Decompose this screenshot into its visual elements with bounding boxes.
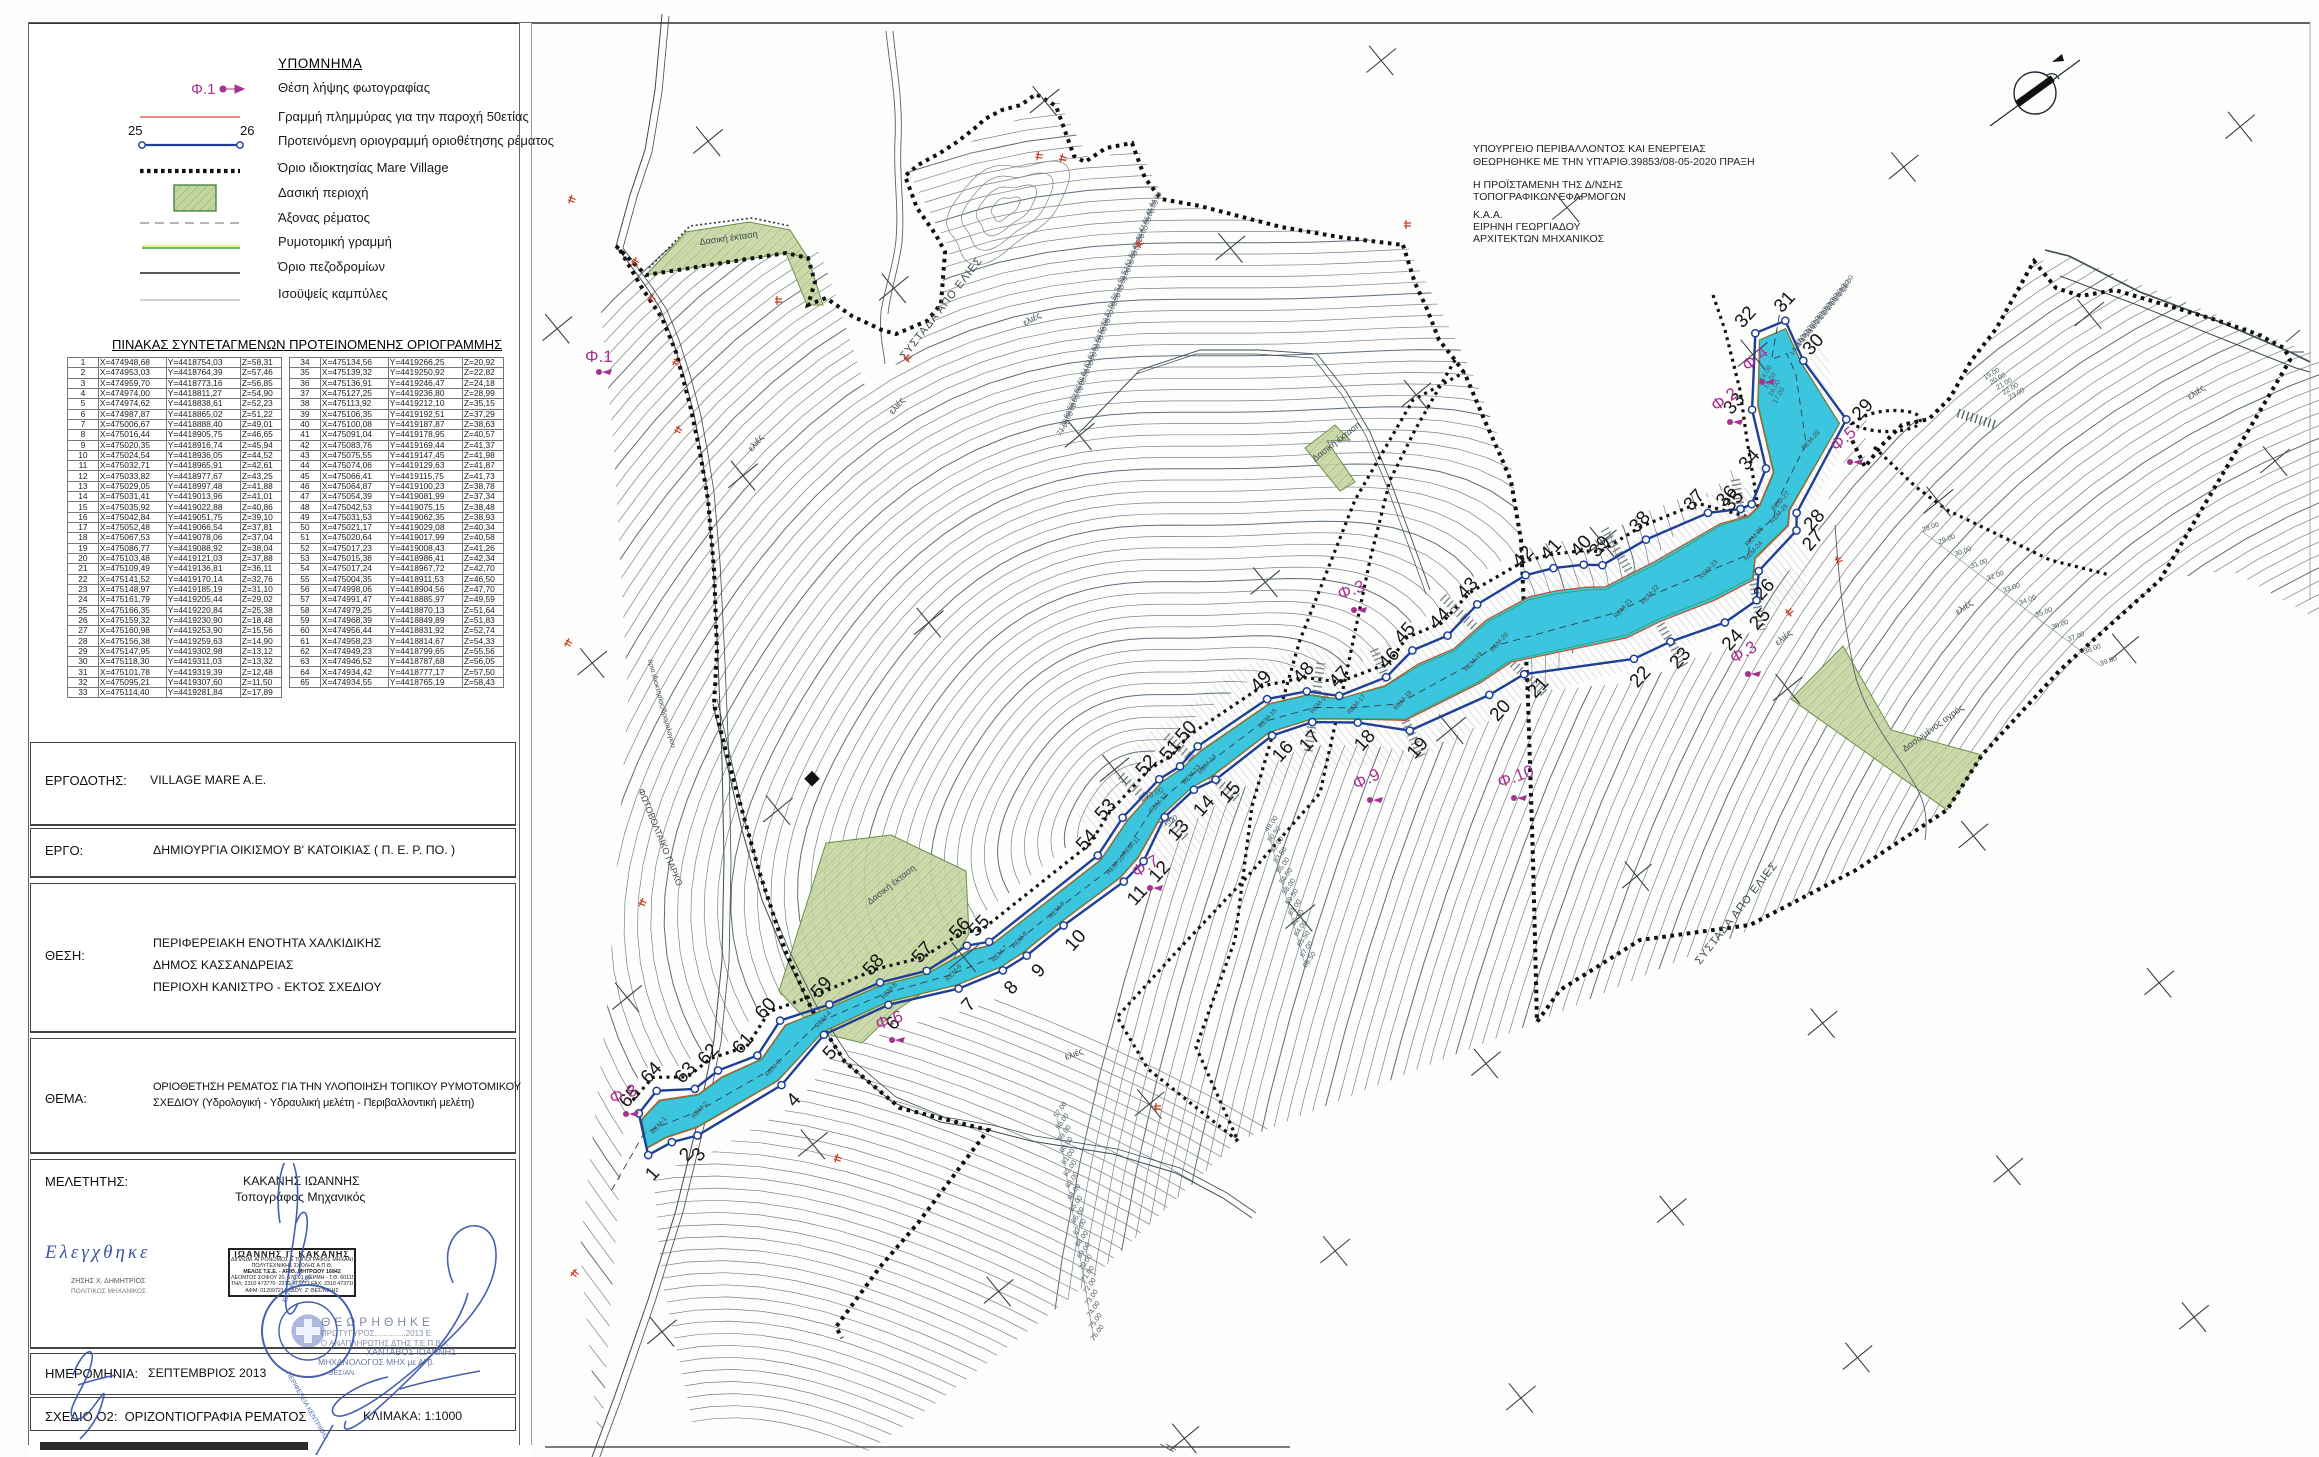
svg-text:Φ.1: Φ.1 [191,81,215,98]
svg-text:9: 9 [1028,960,1051,982]
svg-text:Κ.Α.Α.: Κ.Α.Α. [1473,209,1503,221]
svg-text:Φ.9: Φ.9 [1350,765,1383,794]
svg-text:ΘΕΣ/ΑΝ.: ΘΕΣ/ΑΝ. [328,1370,356,1377]
svg-text:31: 31 [1770,287,1800,317]
svg-text:ελιές: ελιές [2185,382,2207,401]
svg-text:37.00: 37.00 [2067,631,2086,644]
svg-text:11: 11 [1123,881,1152,910]
svg-text:35.00: 35.00 [2035,607,2054,620]
svg-text:Η ΠΡΟΪΣΤΑΜΕΝΗ ΤΗΣ Δ/ΝΣΗΣ: Η ΠΡΟΪΣΤΑΜΕΝΗ ΤΗΣ Δ/ΝΣΗΣ [1473,179,1623,191]
svg-text:42: 42 [1508,542,1538,572]
svg-text:ΥΠΟΥΡΓΕΙΟ ΠΕΡΙΒΑΛΛΟΝΤΟΣ ΚΑΙ ΕΝ: ΥΠΟΥΡΓΕΙΟ ΠΕΡΙΒΑΛΛΟΝΤΟΣ ΚΑΙ ΕΝΕΡΓΕΙΑΣ [1473,143,1706,155]
svg-text:39.00: 39.00 [2099,655,2118,668]
svg-text:ΣΥΣΤΑΔΑ ΑΠΟ ΕΛΙΕΣ: ΣΥΣΤΑΔΑ ΑΠΟ ΕΛΙΕΣ [898,255,985,362]
svg-text:ελιές: ελιές [1063,1046,1085,1062]
svg-text:1: 1 [641,1163,664,1185]
svg-text:31.00: 31.00 [1970,558,1989,571]
svg-text:25: 25 [128,123,142,138]
svg-text:36.00: 36.00 [2051,619,2070,632]
svg-text:4: 4 [783,1089,806,1111]
svg-text:32: 32 [1731,302,1761,332]
svg-text:40: 40 [1567,531,1597,561]
svg-text:64: 64 [637,1058,667,1088]
svg-text:ΘΕΩΡΗΘΗΚΕ ΜΕ ΤΗΝ ΥΠ'ΑΡΙΘ.39853: ΘΕΩΡΗΘΗΚΕ ΜΕ ΤΗΝ ΥΠ'ΑΡΙΘ.39853/08-05-202… [1473,156,1755,168]
svg-text:63: 63 [671,1058,701,1088]
svg-text:33.00: 33.00 [2002,582,2021,595]
svg-text:8: 8 [1000,977,1023,999]
svg-text:ελιές: ελιές [1021,310,1043,328]
svg-text:ΠΕΡΙΦΕΡΕΙΑ ΚΕΝΤΡΙΚΗΣ: ΠΕΡΙΦΕΡΕΙΑ ΚΕΝΤΡΙΚΗΣ [284,1371,329,1442]
svg-text:ΜΗΧΑΝΟΛΟΓΟΣ ΜΗΧ με Α' β.: ΜΗΧΑΝΟΛΟΓΟΣ ΜΗΧ με Α' β. [318,1357,435,1367]
svg-text:26: 26 [240,123,254,138]
svg-text:ΤΟΠΟΓΡΑΦΙΚΩΝ ΕΦΑΡΜΟΓΩΝ: ΤΟΠΟΓΡΑΦΙΚΩΝ ΕΦΑΡΜΟΓΩΝ [1473,191,1626,203]
svg-text:ΕΙΡΗΝΗ ΓΕΩΡΓΙΑΔΟΥ: ΕΙΡΗΝΗ ΓΕΩΡΓΙΑΔΟΥ [1473,221,1581,233]
svg-text:ΑΡΧΙΤΕΚΤΩΝ ΜΗΧΑΝΙΚΟΣ: ΑΡΧΙΤΕΚΤΩΝ ΜΗΧΑΝΙΚΟΣ [1473,233,1605,245]
svg-text:Φ.1: Φ.1 [585,347,613,366]
svg-text:29.00: 29.00 [1937,533,1956,546]
svg-text:ελιές: ελιές [1953,597,1975,616]
svg-text:10: 10 [1061,926,1091,956]
svg-text:41: 41 [1536,535,1566,565]
svg-text:ΧΑΝΤΑΒΟΣ ΙΩΑΝΝΗΣ: ΧΑΝΤΑΒΟΣ ΙΩΑΝΝΗΣ [366,1347,457,1357]
svg-text:29: 29 [1848,395,1878,425]
svg-text:32.00: 32.00 [1986,570,2005,583]
svg-text:ΕΛΛΗΝΙΚΗ: ΕΛΛΗΝΙΚΗ [282,1271,303,1304]
svg-text:71.00: 71.00 [1056,419,1072,437]
